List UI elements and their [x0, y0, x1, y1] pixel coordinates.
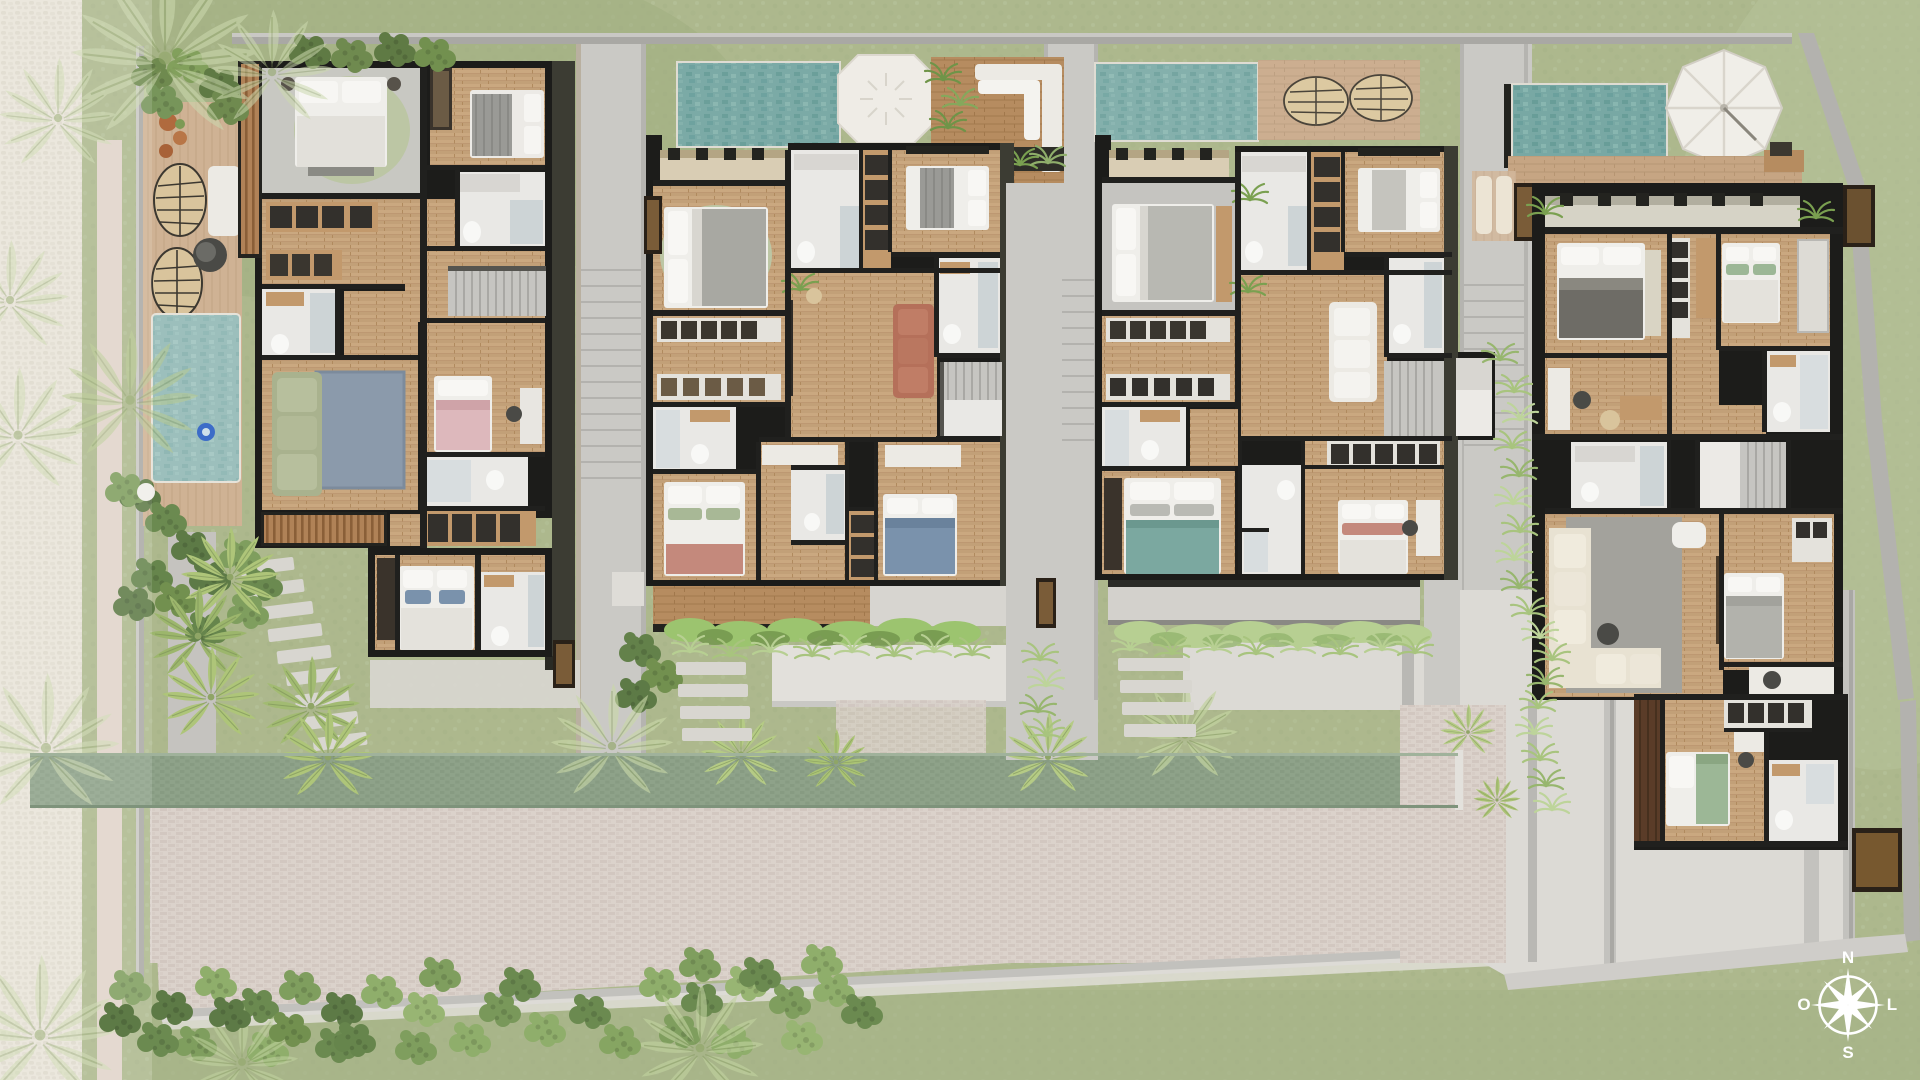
svg-text:O: O — [1797, 995, 1810, 1014]
svg-text:S: S — [1842, 1043, 1853, 1062]
svg-text:N: N — [1842, 948, 1854, 967]
svg-text:L: L — [1887, 995, 1897, 1014]
